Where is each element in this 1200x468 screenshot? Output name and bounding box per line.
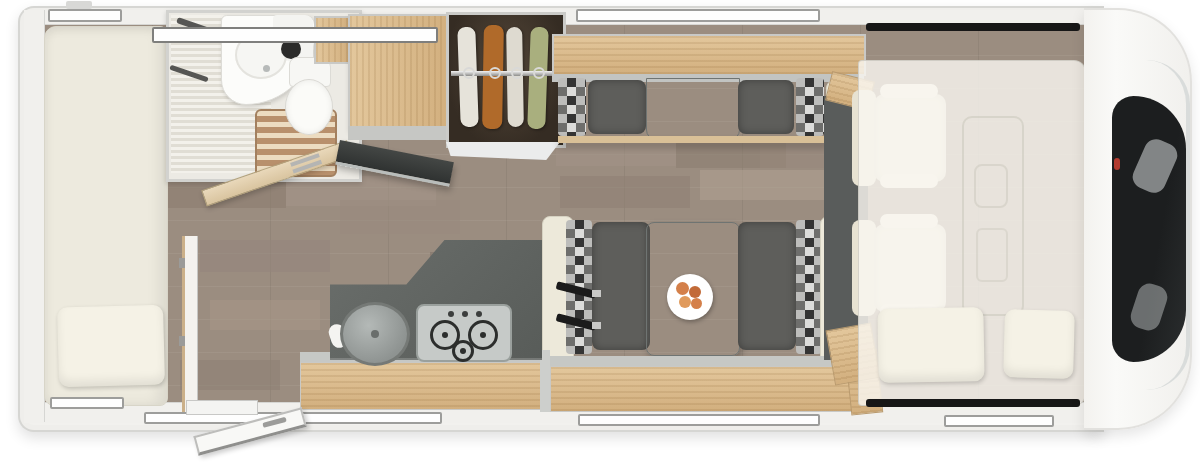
dinette-group bbox=[540, 210, 850, 364]
burner bbox=[452, 340, 474, 362]
door-handle bbox=[262, 417, 286, 428]
bench-base-trim bbox=[558, 136, 828, 143]
floor-plank bbox=[560, 176, 690, 208]
checkered-backrest bbox=[796, 220, 822, 354]
bed-pillow bbox=[57, 305, 165, 388]
roof-fitting bbox=[66, 1, 92, 9]
overhead-locker bbox=[552, 34, 866, 76]
hob-knob bbox=[448, 311, 454, 317]
belt-buckle bbox=[592, 290, 601, 297]
locker-wood bbox=[550, 366, 878, 412]
checkered-bolster bbox=[796, 78, 824, 136]
dropbed-pillow-left bbox=[877, 307, 984, 383]
door-hinge bbox=[179, 258, 185, 268]
hob-3-burner bbox=[416, 304, 512, 362]
toilet-bowl bbox=[285, 79, 333, 135]
hanger-hook bbox=[511, 67, 523, 79]
round-sink-lid bbox=[340, 302, 410, 366]
window-marker bbox=[578, 414, 820, 426]
kitchen-counter-group bbox=[330, 240, 542, 360]
bench-seat-right bbox=[738, 222, 796, 350]
window-marker bbox=[50, 397, 124, 409]
wall-rear bbox=[24, 10, 45, 422]
checkered-bolster bbox=[558, 78, 586, 136]
window-marker bbox=[48, 9, 122, 22]
lid-knob bbox=[371, 330, 379, 338]
dashboard-detail bbox=[976, 228, 1008, 282]
floor-plank bbox=[200, 240, 330, 272]
plate-of-fruit bbox=[667, 274, 713, 320]
sofa-bench-top-group bbox=[552, 34, 864, 144]
cabinet-shelf-edge bbox=[348, 126, 458, 140]
window-marker bbox=[152, 27, 438, 43]
fruit bbox=[689, 286, 701, 298]
window-marker bbox=[944, 415, 1054, 427]
locker-strip-dinette bbox=[550, 356, 876, 414]
dashboard-detail bbox=[974, 164, 1008, 208]
dropbed-pillow-right bbox=[1003, 309, 1075, 379]
window-marker bbox=[576, 9, 820, 22]
floor-plank bbox=[210, 300, 320, 330]
hob-knob bbox=[462, 311, 468, 317]
brand-accent bbox=[1114, 158, 1120, 170]
hob-knob bbox=[476, 311, 482, 317]
floor-plank bbox=[760, 140, 830, 168]
belt-buckle bbox=[592, 322, 601, 329]
door-hinge bbox=[179, 336, 185, 346]
floor-plank bbox=[700, 170, 840, 200]
hanger-hook bbox=[489, 67, 501, 79]
fruit bbox=[691, 298, 702, 309]
sofa-cushion bbox=[738, 80, 794, 134]
faucet bbox=[263, 65, 270, 72]
floor-plank bbox=[340, 200, 460, 234]
locker-wood bbox=[300, 362, 542, 410]
hanger-hook bbox=[533, 67, 545, 79]
cab-side-window-top bbox=[866, 23, 1080, 31]
dashboard-outline bbox=[962, 116, 1024, 316]
cab-side-window-bottom bbox=[866, 399, 1080, 407]
hanger-hook bbox=[463, 67, 475, 79]
wardrobe bbox=[446, 12, 566, 148]
sofa-cushion bbox=[588, 80, 646, 134]
fruit bbox=[676, 282, 689, 295]
motorhome-floorplan bbox=[0, 0, 1200, 468]
entry-threshold bbox=[186, 400, 258, 415]
bench-seat-left bbox=[592, 222, 650, 350]
stowed-table-panel bbox=[646, 78, 740, 140]
fruit bbox=[679, 296, 691, 308]
